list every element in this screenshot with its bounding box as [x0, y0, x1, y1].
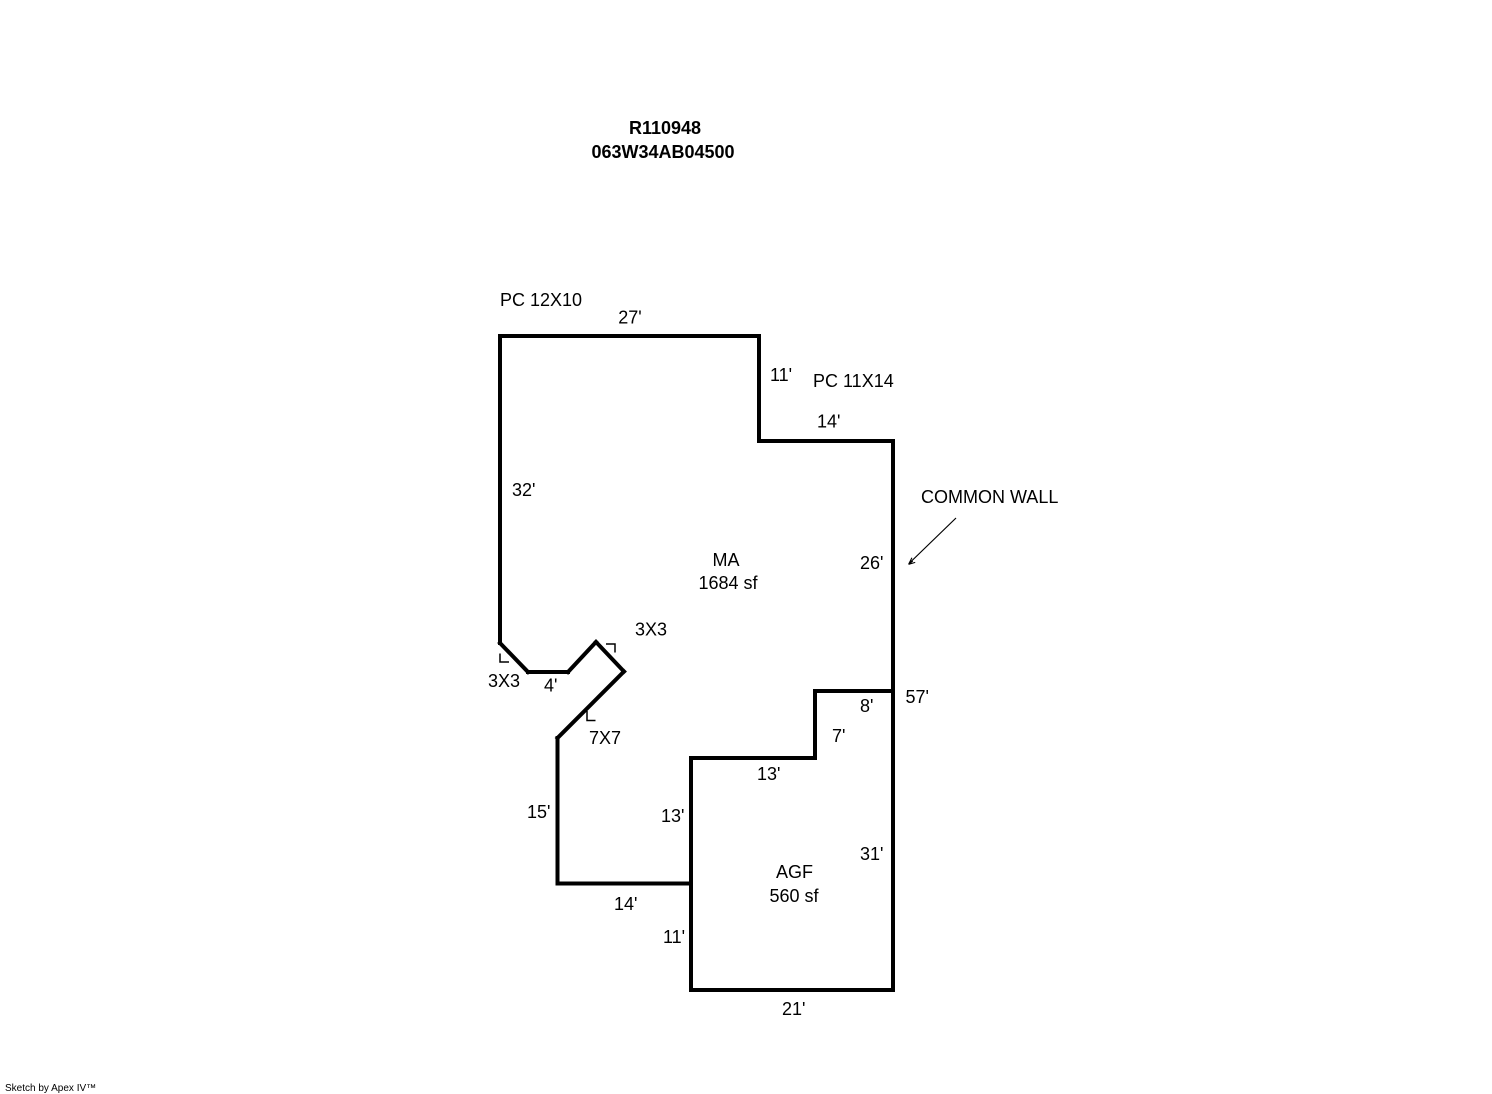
svg-text:21': 21': [782, 999, 805, 1019]
svg-text:Sketch by Apex IV™: Sketch by Apex IV™: [5, 1083, 96, 1094]
svg-text:13': 13': [661, 806, 684, 826]
svg-text:PC 11X14: PC 11X14: [813, 371, 894, 391]
svg-text:R110948: R110948: [629, 118, 701, 138]
svg-text:26': 26': [860, 553, 883, 573]
svg-text:27': 27': [618, 308, 641, 328]
svg-text:3X3: 3X3: [488, 671, 520, 691]
svg-text:560 sf: 560 sf: [769, 886, 819, 906]
svg-text:57': 57': [906, 687, 929, 707]
svg-text:3X3: 3X3: [635, 620, 667, 640]
svg-text:11': 11': [663, 927, 685, 947]
svg-text:PC 12X10: PC 12X10: [500, 290, 582, 310]
svg-text:MA: MA: [713, 550, 740, 570]
svg-text:14': 14': [614, 894, 637, 914]
svg-text:31': 31': [860, 844, 883, 864]
svg-text:063W34AB04500: 063W34AB04500: [591, 142, 734, 162]
svg-text:1684 sf: 1684 sf: [698, 573, 758, 593]
svg-text:8': 8': [860, 696, 873, 716]
svg-text:14': 14': [817, 412, 840, 432]
svg-text:32': 32': [512, 480, 535, 500]
svg-text:15': 15': [527, 802, 550, 822]
svg-text:7X7: 7X7: [589, 728, 621, 748]
svg-text:COMMON WALL: COMMON WALL: [921, 487, 1058, 507]
svg-text:AGF: AGF: [776, 862, 813, 882]
svg-text:11': 11': [770, 365, 792, 385]
svg-text:7': 7': [832, 726, 845, 746]
svg-text:4': 4': [544, 676, 557, 696]
svg-text:13': 13': [757, 764, 780, 784]
